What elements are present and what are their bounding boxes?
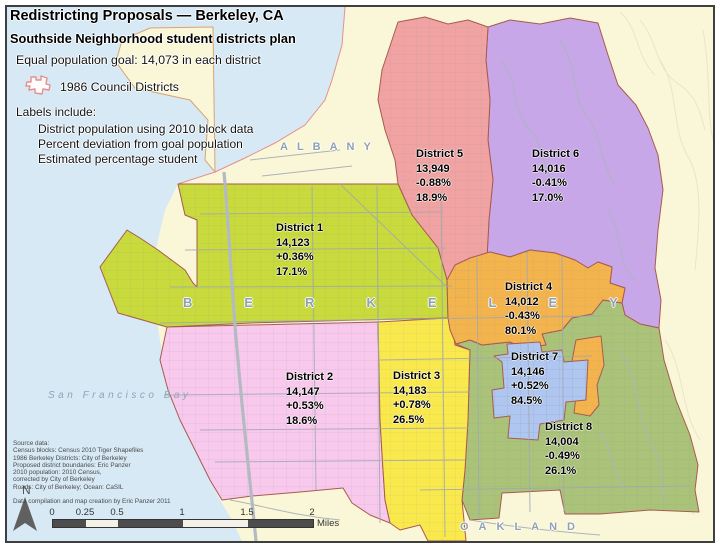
scale-bar-segments	[52, 519, 314, 528]
district-6-label: District 614,016 -0.41%17.0%	[532, 147, 579, 205]
labels-include-item: District population using 2010 block dat…	[38, 122, 253, 136]
city-label-berkeley: BERKELEY	[183, 295, 670, 310]
scale-tick: 0.5	[110, 507, 123, 518]
scale-tick: 1.5	[240, 507, 253, 518]
legend-label: 1986 Council Districts	[60, 80, 179, 94]
page-title: Redistricting Proposals — Berkeley, CA	[10, 8, 284, 24]
district-1-label: District 114,123 +0.36%17.1%	[276, 221, 323, 279]
source-data-box: Source data: Census blocks: Census 2010 …	[13, 440, 171, 505]
labels-include-item: Percent deviation from goal population	[38, 137, 243, 151]
source-line: corrected by City of Berkeley	[13, 476, 171, 483]
source-line: Source data:	[13, 440, 171, 447]
population-goal-text: Equal population goal: 14,073 in each di…	[16, 53, 261, 67]
labels-include-heading: Labels include:	[16, 105, 96, 119]
city-label-albany: ALBANY	[280, 141, 380, 153]
redistricting-map-page: Redistricting Proposals — Berkeley, CA S…	[0, 0, 720, 548]
district-5-label: District 513,949 -0.88%18.9%	[416, 147, 463, 205]
scale-tick: 2	[309, 507, 314, 518]
district-7-label: District 714,146 +0.52%84.5%	[511, 350, 558, 408]
council-district-outline-icon	[22, 73, 54, 99]
district-4-label: District 414,012 -0.43%80.1%	[505, 280, 552, 338]
source-line: 2010 population: 2010 Census,	[13, 469, 171, 476]
source-line: Roads: City of Berkeley; Ocean: CaSIL	[13, 484, 171, 491]
district-8-label: District 814,004 -0.49%26.1%	[545, 420, 592, 478]
source-line: Proposed district boundaries: Eric Panze…	[13, 462, 171, 469]
source-line: 1986 Berkeley Districts: City of Berkele…	[13, 455, 171, 462]
scale-tick: 0	[49, 507, 54, 518]
page-subtitle: Southside Neighborhood student districts…	[10, 31, 296, 46]
map-credit: Data compilation and map creation by Eri…	[13, 498, 171, 505]
scale-unit-label: Miles	[317, 518, 339, 529]
district-3-label: District 314,183 +0.78%26.5%	[393, 369, 440, 427]
district-2-label: District 214,147 +0.53%18.6%	[286, 370, 333, 428]
water-label-san-francisco-bay: San Francisco Bay	[48, 390, 191, 401]
source-line: Census blocks: Census 2010 Tiger Shapefi…	[13, 447, 171, 454]
scale-tick: 1	[179, 507, 184, 518]
labels-include-item: Estimated percentage student	[38, 152, 197, 166]
city-label-oakland: OAKLAND	[460, 521, 585, 533]
scale-tick: 0.25	[76, 507, 95, 518]
